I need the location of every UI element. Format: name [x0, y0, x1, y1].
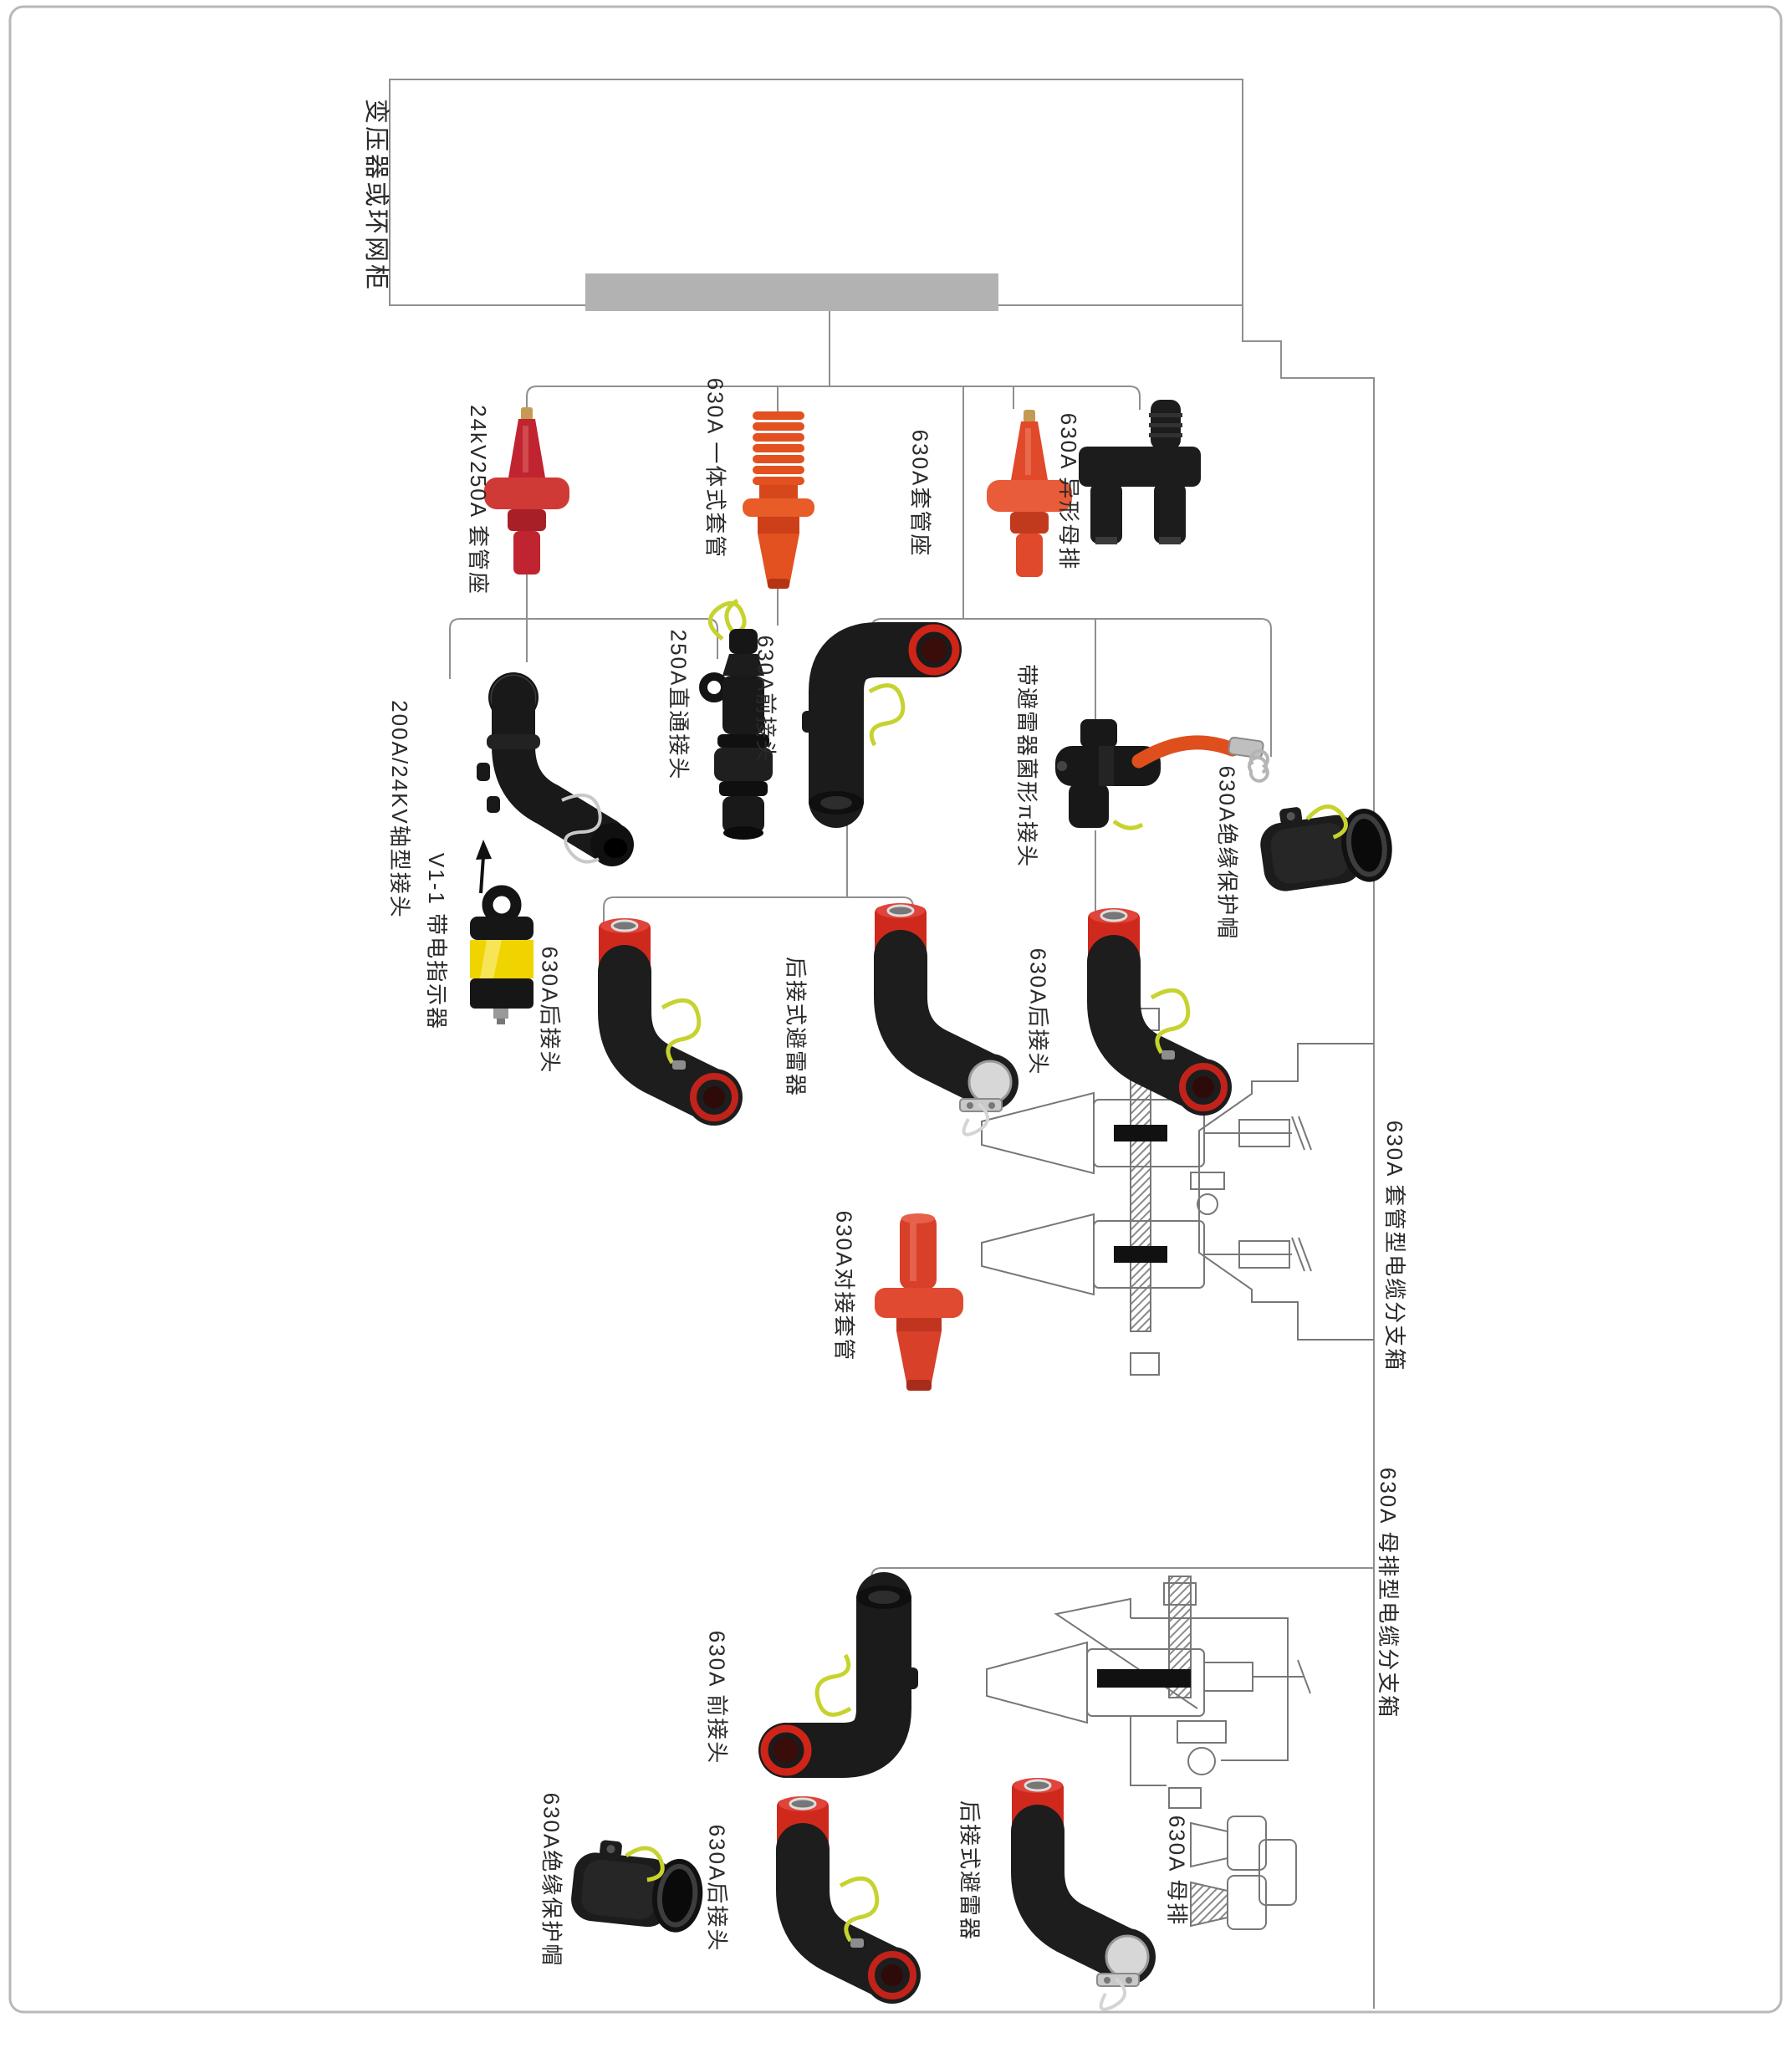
- bushing-butt-image: [875, 1213, 963, 1391]
- label-cap-insulation-mid: 630A绝缘保护帽: [1213, 755, 1242, 952]
- label-bushing-630a-integrated: 630A 一体式套管: [702, 370, 730, 567]
- label-connector-rear-mid-left: 630A后接头: [536, 942, 564, 1080]
- label-box-bushing-type: 630A 套管型电缆分支箱: [1381, 1108, 1409, 1384]
- label-bushing-630a-seat: 630A套管座: [906, 425, 935, 563]
- label-connector-pi-arrester: 带避雷器菌形π接头: [1013, 649, 1041, 883]
- arrester-rear-mid-image: [875, 903, 1019, 1135]
- live-indicator-image: [470, 891, 534, 1024]
- cabinet-busbar-strip: [585, 273, 998, 311]
- label-connector-rear-bottom: 630A后接头: [703, 1820, 732, 1958]
- diagram-artwork: [0, 0, 1792, 2048]
- label-bushing-butt: 630A对接套管: [830, 1197, 859, 1376]
- cap-insulation-bottom-image: [569, 1837, 707, 1935]
- label-box-busbar-type: 630A 母排型电缆分支箱: [1374, 1455, 1402, 1731]
- bushing-630a-integrated-image: [743, 411, 814, 589]
- cap-insulation-mid-image: [1256, 794, 1397, 896]
- catalog-diagram-page: 变压器或环网柜 24kV250A 套管座 630A 一体式套管 630A套管座 …: [0, 0, 1792, 2048]
- label-connector-front-bottom: 630A 前接头: [703, 1621, 732, 1775]
- label-connector-axial: 200A/24KV轴型接头: [385, 672, 414, 947]
- connector-front-bottom-image: [758, 1586, 918, 1778]
- connector-rear-mid-left-image: [599, 918, 743, 1126]
- label-bushing-24kv250a: 24kV250A 套管座: [464, 400, 493, 600]
- label-busbar-630a: 630A 母排: [1163, 1811, 1192, 1932]
- arrester-rear-bottom-image: [1012, 1778, 1156, 2010]
- connector-rear-bottom-image: [777, 1796, 921, 2004]
- label-live-indicator: V1-1 带电指示器: [422, 837, 451, 1046]
- connector-front-mid-image: [802, 622, 962, 815]
- busbar-630a-drawing: [1191, 1816, 1296, 1929]
- label-connector-rear-mid-right: 630A后接头: [1024, 943, 1053, 1081]
- label-arrester-rear-bottom: 后接式避雷器: [956, 1790, 984, 1953]
- bushing-24kv250a-image: [484, 407, 569, 575]
- label-connector-front-mid: 630A前接头: [752, 631, 780, 769]
- connector-axial-image: [477, 672, 634, 866]
- busbar-shaped-image: [1079, 400, 1201, 544]
- label-arrester-rear-mid: 后接式避雷器: [782, 946, 810, 1109]
- label-busbar-shaped: 630A 异形母排: [1054, 408, 1083, 575]
- label-cabinet: 变压器或环网柜: [361, 99, 390, 291]
- branch-box-busbar-drawing: [987, 1576, 1310, 1808]
- cabinet-box: [390, 79, 1243, 305]
- indicator-arrow-icon: [476, 840, 492, 893]
- label-cap-insulation-bottom: 630A绝缘保护帽: [538, 1782, 566, 1979]
- label-connector-straight-250a: 250A直通接头: [665, 624, 693, 787]
